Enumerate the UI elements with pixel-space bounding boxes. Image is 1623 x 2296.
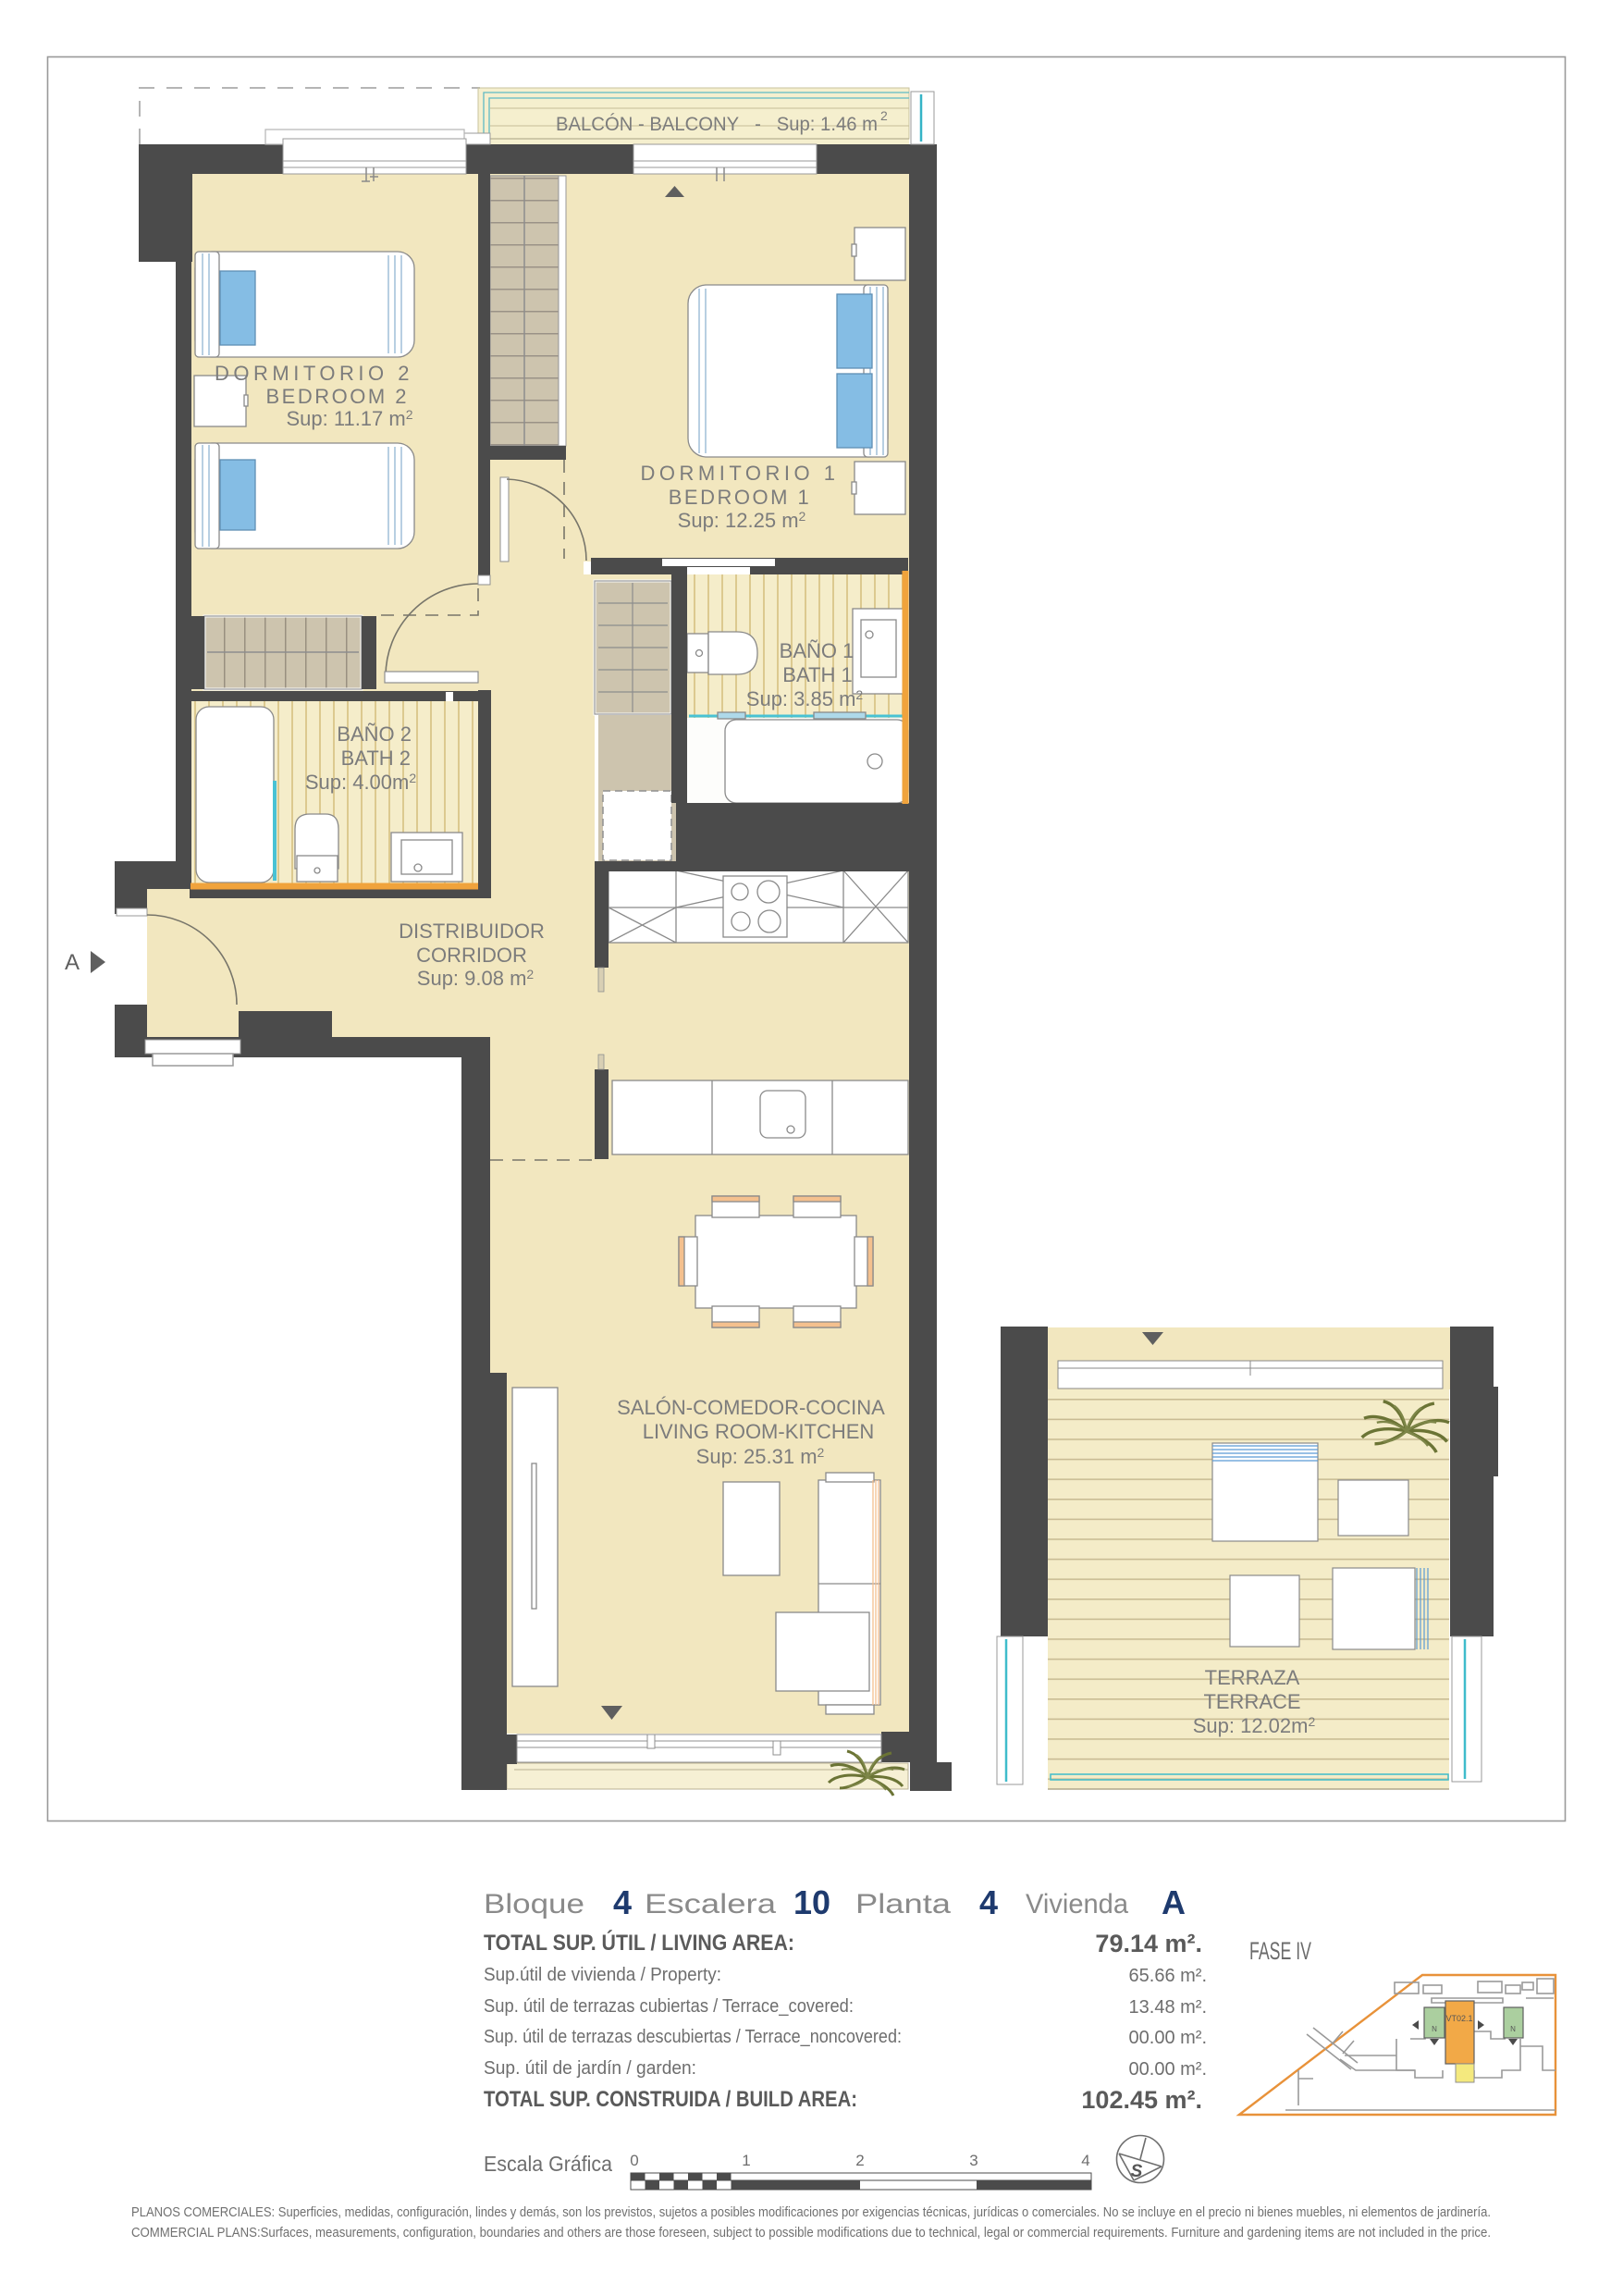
svg-text:Sup. útil de jardín / garden:: Sup. útil de jardín / garden: bbox=[484, 2058, 696, 2079]
svg-text:Sup: 11.17 m2: Sup: 11.17 m2 bbox=[286, 407, 412, 430]
svg-text:0: 0 bbox=[630, 2152, 638, 2169]
svg-text:DORMITORIO 2: DORMITORIO 2 bbox=[215, 362, 413, 385]
svg-text:1: 1 bbox=[742, 2152, 750, 2169]
svg-text:Sup. útil de terrazas descubie: Sup. útil de terrazas descubiertas / Ter… bbox=[484, 2027, 902, 2047]
svg-text:FASE IV: FASE IV bbox=[1249, 1937, 1311, 1965]
svg-text:00.00 m².: 00.00 m². bbox=[1129, 2028, 1207, 2048]
svg-text:PLANOS COMERCIALES: Superficie: PLANOS COMERCIALES: Superficies, medidas… bbox=[131, 2205, 1491, 2220]
svg-text:Vivienda: Vivienda bbox=[1026, 1889, 1128, 1920]
svg-text:Escala Gráfica: Escala Gráfica bbox=[484, 2152, 612, 2176]
svg-text:TERRACE: TERRACE bbox=[1203, 1690, 1300, 1713]
svg-text:4: 4 bbox=[613, 1883, 632, 1921]
svg-text:BAÑO 1: BAÑO 1 bbox=[780, 639, 855, 662]
svg-text:BATH 2: BATH 2 bbox=[341, 747, 411, 770]
svg-text:00.00 m².: 00.00 m². bbox=[1129, 2059, 1207, 2080]
svg-text:Sup. útil de terrazas cubierta: Sup. útil de terrazas cubiertas / Terrac… bbox=[484, 1996, 854, 2017]
svg-text:BEDROOM 2: BEDROOM 2 bbox=[265, 385, 409, 408]
svg-text:Sup: 4.00m2: Sup: 4.00m2 bbox=[305, 771, 417, 794]
svg-text:2: 2 bbox=[855, 2152, 864, 2169]
svg-text:10: 10 bbox=[793, 1883, 830, 1921]
svg-text:Sup: 25.31 m2: Sup: 25.31 m2 bbox=[696, 1445, 825, 1468]
svg-text:Sup: 12.02m2: Sup: 12.02m2 bbox=[1193, 1714, 1316, 1737]
svg-text:Planta: Planta bbox=[855, 1889, 951, 1920]
svg-text:2: 2 bbox=[880, 108, 888, 123]
svg-text:TOTAL SUP. ÚTIL / LIVING AREA:: TOTAL SUP. ÚTIL / LIVING AREA: bbox=[484, 1930, 794, 1956]
svg-text:BATH 1: BATH 1 bbox=[782, 663, 852, 686]
svg-text:BEDROOM 1: BEDROOM 1 bbox=[669, 486, 812, 509]
svg-text:TOTAL SUP. CONSTRUIDA / BUILD: TOTAL SUP. CONSTRUIDA / BUILD AREA: bbox=[484, 2087, 857, 2112]
svg-text:4: 4 bbox=[1081, 2152, 1089, 2169]
svg-text:S: S bbox=[1131, 2162, 1143, 2181]
svg-text:SALÓN-COMEDOR-COCINA: SALÓN-COMEDOR-COCINA bbox=[617, 1396, 885, 1419]
svg-text:Sup: 3.85 m2: Sup: 3.85 m2 bbox=[746, 687, 864, 710]
svg-text:Sup.útil de vivienda / Propert: Sup.útil de vivienda / Property: bbox=[484, 1965, 721, 1985]
svg-text:A: A bbox=[65, 950, 80, 975]
svg-text:DISTRIBUIDOR: DISTRIBUIDOR bbox=[399, 920, 545, 943]
svg-text:Sup: 9.08 m2: Sup: 9.08 m2 bbox=[417, 967, 535, 990]
svg-text:65.66 m².: 65.66 m². bbox=[1129, 1966, 1207, 1986]
svg-text:BAÑO 2: BAÑO 2 bbox=[337, 722, 412, 746]
svg-text:Escalera: Escalera bbox=[645, 1889, 776, 1920]
svg-text:LIVING ROOM-KITCHEN: LIVING ROOM-KITCHEN bbox=[643, 1420, 875, 1443]
svg-text:N: N bbox=[1432, 2025, 1437, 2033]
svg-text:3: 3 bbox=[969, 2152, 977, 2169]
svg-text:Bloque: Bloque bbox=[484, 1889, 584, 1920]
svg-text:DORMITORIO 1: DORMITORIO 1 bbox=[641, 462, 840, 485]
svg-text:COMMERCIAL PLANS:Surfaces, mea: COMMERCIAL PLANS:Surfaces, measurements,… bbox=[131, 2226, 1491, 2240]
svg-text:Sup: 12.25 m2: Sup: 12.25 m2 bbox=[678, 509, 806, 532]
svg-text:102.45 m².: 102.45 m². bbox=[1081, 2086, 1202, 2114]
svg-text:N: N bbox=[1510, 2025, 1516, 2033]
svg-text:CORRIDOR: CORRIDOR bbox=[416, 944, 527, 967]
svg-text:VT02.1: VT02.1 bbox=[1445, 2014, 1472, 2023]
svg-text:TERRAZA: TERRAZA bbox=[1205, 1666, 1300, 1689]
svg-text:13.48 m².: 13.48 m². bbox=[1129, 1997, 1207, 2018]
svg-text:4: 4 bbox=[979, 1883, 998, 1921]
svg-text:79.14 m².: 79.14 m². bbox=[1095, 1930, 1202, 1957]
svg-text:A: A bbox=[1162, 1883, 1186, 1921]
svg-text:BALCÓN - BALCONY - Sup: 1.: BALCÓN - BALCONY - Sup: 1.46 m bbox=[556, 114, 878, 135]
